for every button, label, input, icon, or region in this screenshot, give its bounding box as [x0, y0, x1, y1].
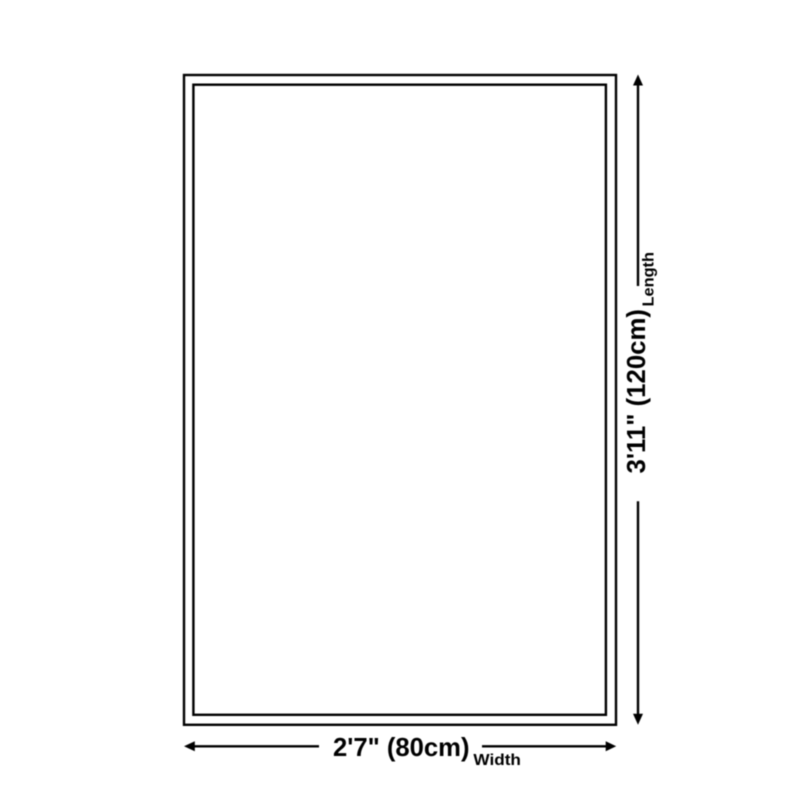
- svg-text:Width: Width: [473, 752, 521, 769]
- svg-text:Length: Length: [641, 252, 658, 307]
- svg-text:2'7" (80cm): 2'7" (80cm): [333, 732, 470, 762]
- svg-text:3'11" (120cm): 3'11" (120cm): [621, 309, 651, 474]
